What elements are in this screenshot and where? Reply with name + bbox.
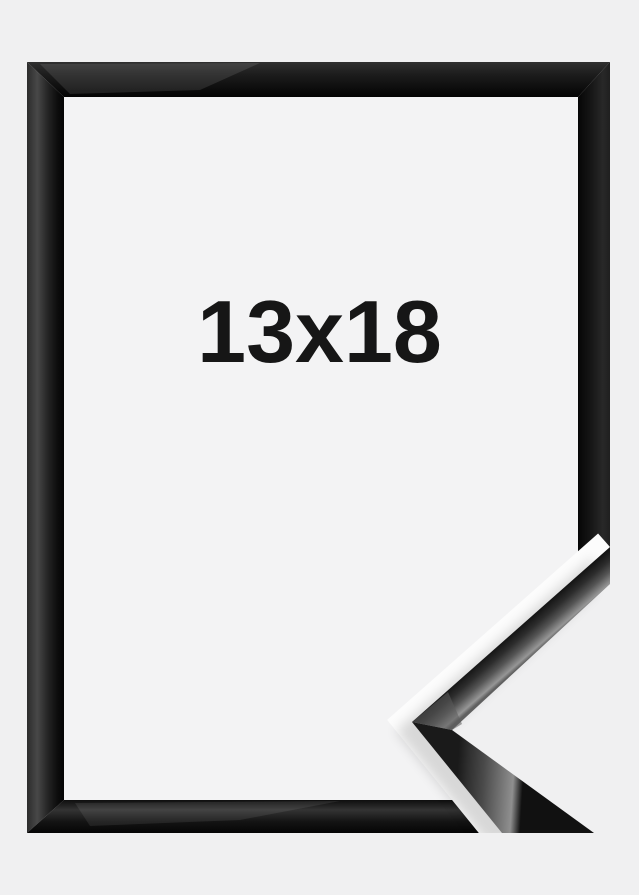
product-photo: 13x18	[0, 0, 639, 895]
size-label: 13x18	[0, 277, 639, 387]
frame-photo-graphic	[0, 0, 639, 895]
frame-left-bar	[27, 62, 64, 833]
